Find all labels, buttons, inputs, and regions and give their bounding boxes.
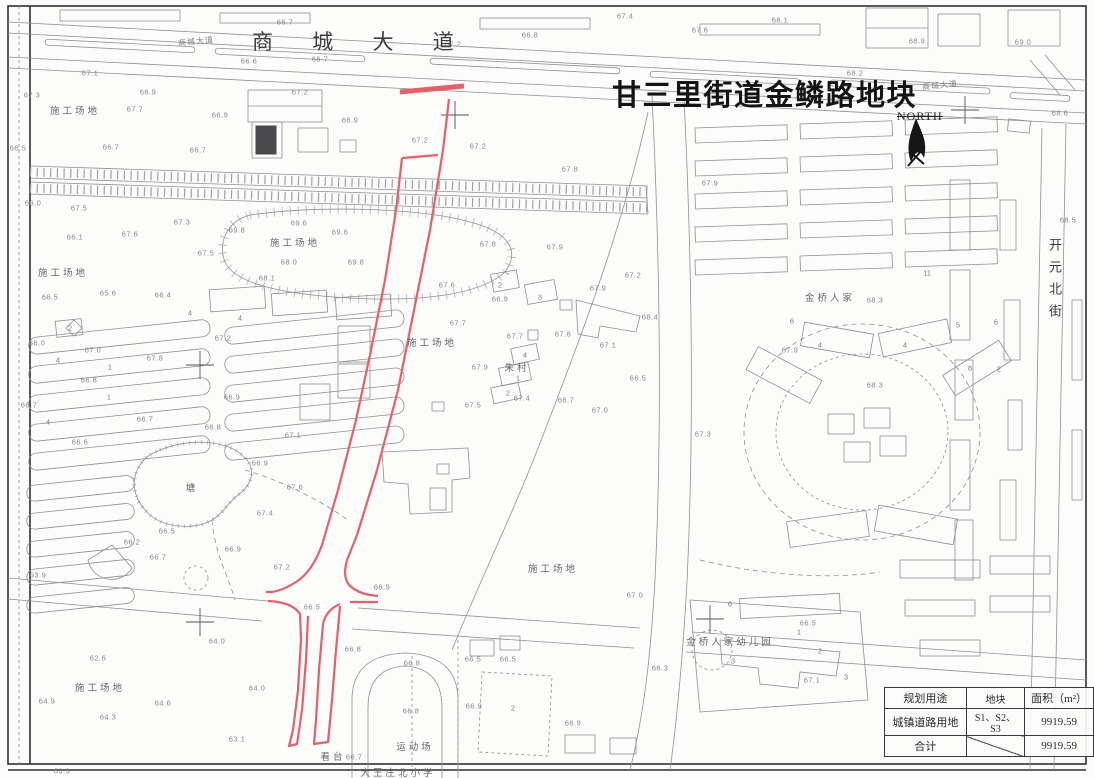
elevation-label: 67.4 (617, 12, 634, 21)
elevation-label: 67.9 (547, 243, 564, 252)
site-label: 施工场地 (38, 265, 88, 279)
scanned-planning-map: 66.766.666.767.267.466.867.668.168.969.0… (0, 0, 1094, 778)
building-number-label: 4 (46, 418, 50, 427)
elevation-label: 67.3 (695, 430, 712, 439)
elevation-label: 66.7 (190, 146, 207, 155)
elevation-label: 66.5 (465, 655, 482, 664)
site-label: 金桥人家 (805, 290, 855, 304)
table-total-row: 合计 9919.59 (885, 736, 1094, 757)
elevation-label: 66.8 (345, 645, 362, 654)
elevation-label: 63.9 (30, 571, 47, 580)
building-number-label: 4 (188, 309, 192, 318)
elevation-label: 66.9 (466, 702, 483, 711)
elevation-label: 68.3 (867, 296, 884, 305)
elevation-label: 67.5 (198, 249, 215, 258)
cell-total-parcel-diagonal (966, 736, 1024, 757)
elevation-label: 69.8 (348, 258, 365, 267)
north-arrow-icon (908, 118, 925, 166)
building-number-label: 2 (511, 704, 515, 713)
avenue-road (8, 10, 1086, 124)
elevation-label: 68.1 (259, 274, 276, 283)
elevation-label: 66.8 (404, 659, 421, 668)
elevation-label: 67.6 (555, 330, 572, 339)
elevation-label: 67.0 (627, 591, 644, 600)
elevation-label: 67.8 (562, 165, 579, 174)
building-number-label: 2 (68, 324, 72, 333)
north-label: NORTH (897, 110, 943, 122)
elevation-label: 66.7 (277, 18, 294, 27)
elevation-label: 65.6 (100, 289, 117, 298)
elevation-label: 67.2 (412, 136, 429, 145)
header-use: 规划用途 (885, 688, 967, 709)
elevation-label: 66.7 (137, 415, 154, 424)
building-number-label: 1 (797, 628, 801, 637)
elevation-label: 66.8 (403, 707, 420, 716)
building-number-label: 1 (108, 363, 112, 372)
elevation-label: 67.8 (147, 354, 164, 363)
map-title: 甘三里街道金鳞路地块 (612, 82, 917, 111)
elevation-label: 69.6 (291, 219, 308, 228)
elevation-label: 67.4 (514, 394, 531, 403)
elevation-label: 67.7 (127, 105, 144, 114)
building-number-label: 2 (997, 365, 1001, 374)
building-number-label: 2 (506, 389, 510, 398)
elevation-label: 66.7 (21, 401, 38, 410)
elevation-label: 67.2 (625, 271, 642, 280)
elevation-label: 66.9 (492, 295, 509, 304)
building-number-label: 4 (818, 341, 822, 350)
elevation-label: 67.2 (470, 142, 487, 151)
cell-total-area: 9919.59 (1025, 736, 1094, 757)
elevation-label: 66.9 (140, 88, 157, 97)
elevation-label: 68.2 (847, 69, 864, 78)
elevation-label: 66.1 (67, 233, 84, 242)
avenue-name-label: 商 城 大 道 (252, 32, 471, 53)
elevation-label: 68.0 (281, 258, 298, 267)
elevation-label: 66.5 (159, 527, 176, 536)
site-label: 看台 (320, 749, 345, 763)
site-label: 朱村 (504, 360, 529, 374)
elevation-label: 62.6 (90, 654, 107, 663)
building-number-label: 4 (56, 356, 60, 365)
site-label: 施工场地 (407, 335, 457, 349)
elevation-label: 67.5 (465, 401, 482, 410)
site-label: 施工场地 (528, 561, 578, 575)
elevation-label: 67.4 (257, 509, 274, 518)
elevation-label: 69.8 (229, 226, 246, 235)
elevation-label: 67.3 (174, 218, 191, 227)
elevation-label: 68.4 (642, 313, 659, 322)
table-header-row: 规划用途 地块 面积（m²） (885, 688, 1094, 709)
elevation-label: 64.9 (39, 697, 56, 706)
cell-use: 城镇道路用地 (885, 709, 967, 736)
site-label: 运动场 (396, 739, 434, 753)
elevation-label: 67.0 (85, 346, 102, 355)
topleft-buildings (55, 90, 356, 337)
pond (88, 442, 348, 600)
cell-area: 9919.59 (1025, 709, 1094, 736)
building-number-label: 8 (968, 364, 972, 373)
building-number-label: 3 (538, 293, 542, 302)
elevation-label: 67.6 (692, 26, 709, 35)
elevation-label: 67.6 (439, 281, 456, 290)
elevation-label: 66.0 (25, 199, 42, 208)
elevation-label: 66.3 (652, 664, 669, 673)
elevation-label: 67.7 (450, 319, 467, 328)
elevation-label: 66.6 (241, 57, 258, 66)
elevation-label: 68.6 (1052, 109, 1069, 118)
elevation-label: 66.2 (124, 538, 141, 547)
elevation-label: 64.6 (155, 699, 172, 708)
elevation-label: 66.7 (346, 753, 363, 762)
elevation-label: 66.9 (342, 116, 359, 125)
elevation-label: 63.3 (54, 767, 71, 776)
elevation-label: 67.9 (590, 284, 607, 293)
elevation-label: 67.9 (472, 363, 489, 372)
site-label: 施工场地 (50, 103, 100, 117)
building-number-label: 6 (790, 317, 794, 326)
building-number-label: 2 (498, 281, 502, 290)
elevation-label: 66.5 (304, 603, 321, 612)
elevation-label: 67.7 (507, 332, 524, 341)
site-label: 金桥人家幼儿园 (686, 634, 774, 648)
site-label: 大王庄北小学 (360, 765, 435, 778)
elevation-label: 68.1 (772, 16, 789, 25)
building-number-label: 1 (516, 374, 520, 383)
elevation-label: 66.7 (103, 143, 120, 152)
elevation-label: 66.6 (72, 438, 89, 447)
elevation-label: 66.9 (212, 111, 229, 120)
elevation-label: 67.2 (215, 334, 232, 343)
elevation-label: 67.9 (702, 179, 719, 188)
elevation-label: 63.1 (229, 735, 246, 744)
elevation-label: 64.0 (209, 637, 226, 646)
elevation-label: 67.8 (480, 240, 497, 249)
elevation-label: 67.6 (122, 230, 139, 239)
elevation-label: 67.1 (82, 69, 99, 78)
site-label: 施工场地 (75, 680, 125, 694)
elevation-label: 66.8 (205, 423, 222, 432)
elevation-label: 67.1 (600, 341, 617, 350)
header-parcel: 地块 (966, 688, 1024, 709)
elevation-label: 67.5 (71, 204, 88, 213)
elevation-label: 67.1 (285, 431, 302, 440)
elevation-label: 66.9 (374, 583, 391, 592)
elevation-label: 68.3 (867, 381, 884, 390)
site-label: 施工场地 (270, 235, 320, 249)
elevation-label: 66.9 (252, 459, 269, 468)
elevation-label: 66.5 (42, 293, 59, 302)
table-row: 城镇道路用地 S1、S2、S3 9919.59 (885, 709, 1094, 736)
elevation-label: 67.9 (782, 346, 799, 355)
elevation-label: 69.0 (1015, 38, 1032, 47)
sports-field (352, 636, 636, 778)
elevation-label: 66.7 (312, 55, 329, 64)
railway (30, 166, 648, 214)
elevation-label: 67.2 (274, 563, 291, 572)
planning-area-table: 规划用途 地块 面积（m²） 城镇道路用地 S1、S2、S3 9919.59 合… (884, 687, 1094, 757)
elevation-label: 67.0 (592, 406, 609, 415)
elevation-label: 68.5 (1060, 216, 1077, 225)
building-number-label: 4 (903, 341, 907, 350)
residential-compound (690, 117, 1082, 712)
elevation-label: 69.6 (332, 228, 349, 237)
elevation-label: 66.8 (522, 31, 539, 40)
elevation-label: 66.5 (10, 144, 27, 153)
elevation-label: 67.6 (287, 483, 304, 492)
building-number-label: 3 (731, 657, 735, 666)
header-area: 面积（m²） (1025, 688, 1094, 709)
elevation-label: 66.5 (630, 374, 647, 383)
building-number-label: 4 (523, 351, 527, 360)
building-number-label: 3 (844, 673, 848, 682)
elevation-label: 67.1 (804, 676, 821, 685)
cell-total-label: 合计 (885, 736, 967, 757)
elevation-label: 66.4 (155, 291, 172, 300)
building-number-label: 1 (107, 393, 111, 402)
building-number-label: 6 (728, 600, 732, 609)
building-number-label: 11 (923, 269, 931, 278)
elevation-label: 66.7 (150, 553, 167, 562)
right-street-name-label: 开元北街 (1048, 238, 1061, 326)
elevation-label: 64.0 (249, 684, 266, 693)
elevation-label: 68.9 (909, 37, 926, 46)
village-buildings (300, 270, 640, 514)
elevation-label: 66.5 (800, 619, 817, 628)
cell-parcel: S1、S2、S3 (966, 709, 1024, 736)
elevation-label: 66.9 (224, 393, 241, 402)
elevation-label: 66.7 (558, 396, 575, 405)
central-roads (8, 96, 1086, 770)
elevation-label: 66.0 (29, 339, 46, 348)
elevation-label: 67.3 (24, 91, 41, 100)
elevation-label: 67.2 (292, 88, 309, 97)
barracks-rows (26, 309, 405, 614)
elevation-label: 66.9 (565, 719, 582, 728)
building-number-label: 2 (818, 647, 822, 656)
building-number-label: 4 (238, 314, 242, 323)
elevation-label: 66.9 (225, 545, 242, 554)
site-label: 塘 (186, 480, 199, 494)
building-number-label: 6 (994, 318, 998, 327)
elevation-label: 64.3 (100, 713, 117, 722)
building-number-label: 5 (956, 321, 960, 330)
elevation-label: 66.8 (81, 376, 98, 385)
elevation-label: 66.5 (500, 655, 517, 664)
